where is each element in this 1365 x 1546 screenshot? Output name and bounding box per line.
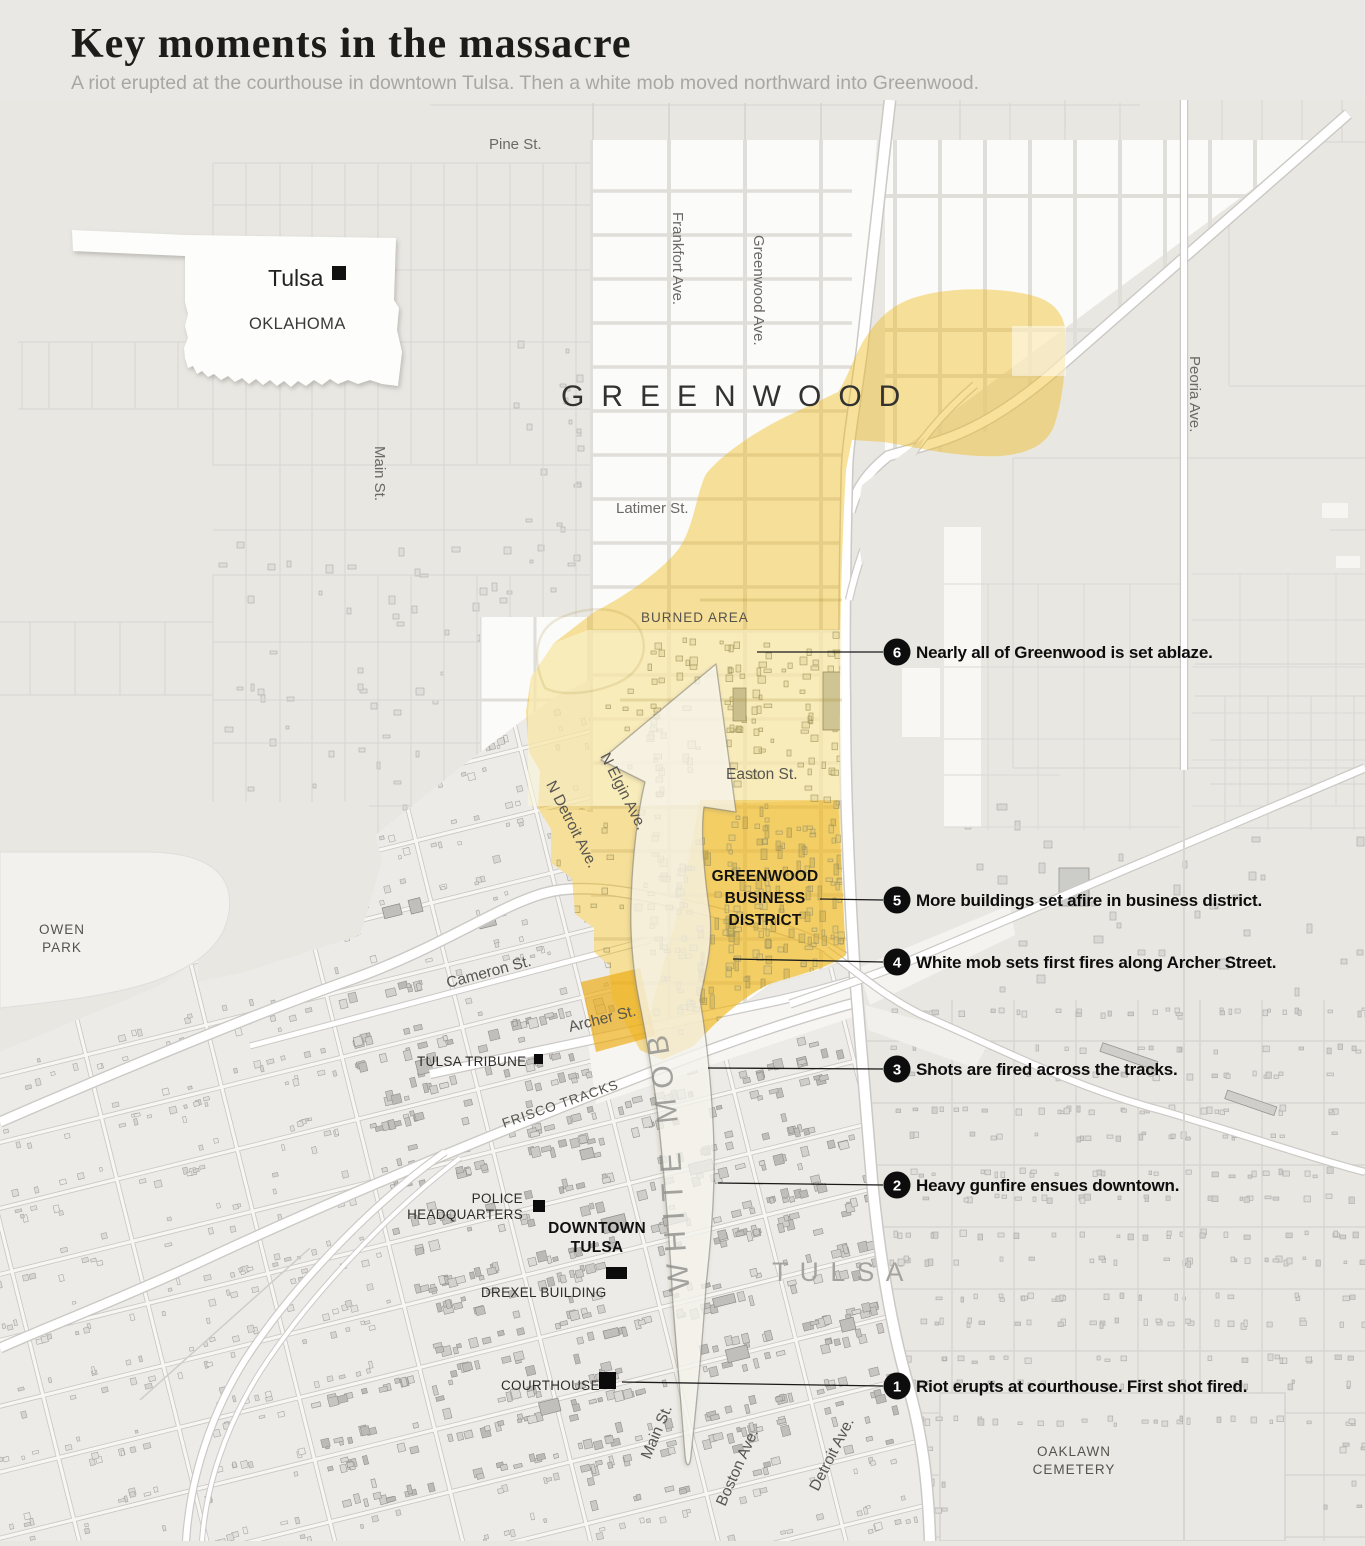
svg-text:OKLAHOMA: OKLAHOMA xyxy=(249,315,346,333)
svg-text:2: 2 xyxy=(893,1178,901,1195)
svg-text:TULSA TRIBUNE: TULSA TRIBUNE xyxy=(417,1054,526,1069)
svg-text:HEADQUARTERS: HEADQUARTERS xyxy=(407,1207,523,1222)
svg-text:TULSA: TULSA xyxy=(772,1257,915,1287)
svg-text:POLICE: POLICE xyxy=(472,1191,523,1206)
svg-text:DISTRICT: DISTRICT xyxy=(728,912,801,929)
svg-text:White mob sets first fires alo: White mob sets first fires along Archer … xyxy=(916,953,1276,972)
svg-text:Shots are fired across the tra: Shots are fired across the tracks. xyxy=(916,1060,1178,1079)
svg-text:Heavy gunfire ensues downtown.: Heavy gunfire ensues downtown. xyxy=(916,1176,1179,1195)
svg-text:1: 1 xyxy=(893,1379,901,1396)
svg-text:OWEN: OWEN xyxy=(39,922,85,937)
svg-text:Latimer St.: Latimer St. xyxy=(616,500,689,517)
svg-text:6: 6 xyxy=(893,645,901,662)
svg-text:PARK: PARK xyxy=(42,940,82,955)
svg-text:5: 5 xyxy=(893,893,901,910)
svg-text:Key moments in the massacre: Key moments in the massacre xyxy=(71,21,631,67)
svg-text:Peoria Ave.: Peoria Ave. xyxy=(1186,356,1203,432)
svg-text:More buildings set afire in bu: More buildings set afire in business dis… xyxy=(916,891,1262,910)
svg-text:GREENWOOD: GREENWOOD xyxy=(561,380,917,413)
svg-text:Tulsa: Tulsa xyxy=(268,265,324,291)
svg-text:Pine St.: Pine St. xyxy=(489,136,542,153)
svg-text:3: 3 xyxy=(893,1062,901,1079)
svg-text:GREENWOOD: GREENWOOD xyxy=(712,868,819,885)
svg-text:OAKLAWN: OAKLAWN xyxy=(1037,1444,1111,1459)
svg-text:TULSA: TULSA xyxy=(571,1239,624,1256)
svg-text:Frankfort Ave.: Frankfort Ave. xyxy=(669,212,686,305)
svg-text:Greenwood Ave.: Greenwood Ave. xyxy=(750,235,767,346)
svg-text:Nearly all of Greenwood is set: Nearly all of Greenwood is set ablaze. xyxy=(916,643,1213,662)
svg-text:CEMETERY: CEMETERY xyxy=(1033,1462,1116,1477)
svg-text:Easton St.: Easton St. xyxy=(726,766,798,783)
svg-text:A riot erupted at the courthou: A riot erupted at the courthouse in down… xyxy=(71,72,979,94)
svg-text:DREXEL BUILDING: DREXEL BUILDING xyxy=(481,1285,607,1300)
svg-text:DOWNTOWN: DOWNTOWN xyxy=(548,1220,646,1237)
svg-text:Main St.: Main St. xyxy=(371,446,388,501)
svg-text:COURTHOUSE: COURTHOUSE xyxy=(501,1378,600,1393)
svg-text:Riot erupts at courthouse. Fir: Riot erupts at courthouse. First shot fi… xyxy=(916,1377,1247,1396)
svg-text:BURNED AREA: BURNED AREA xyxy=(641,610,749,625)
svg-text:4: 4 xyxy=(893,955,902,972)
svg-text:BUSINESS: BUSINESS xyxy=(725,890,806,907)
